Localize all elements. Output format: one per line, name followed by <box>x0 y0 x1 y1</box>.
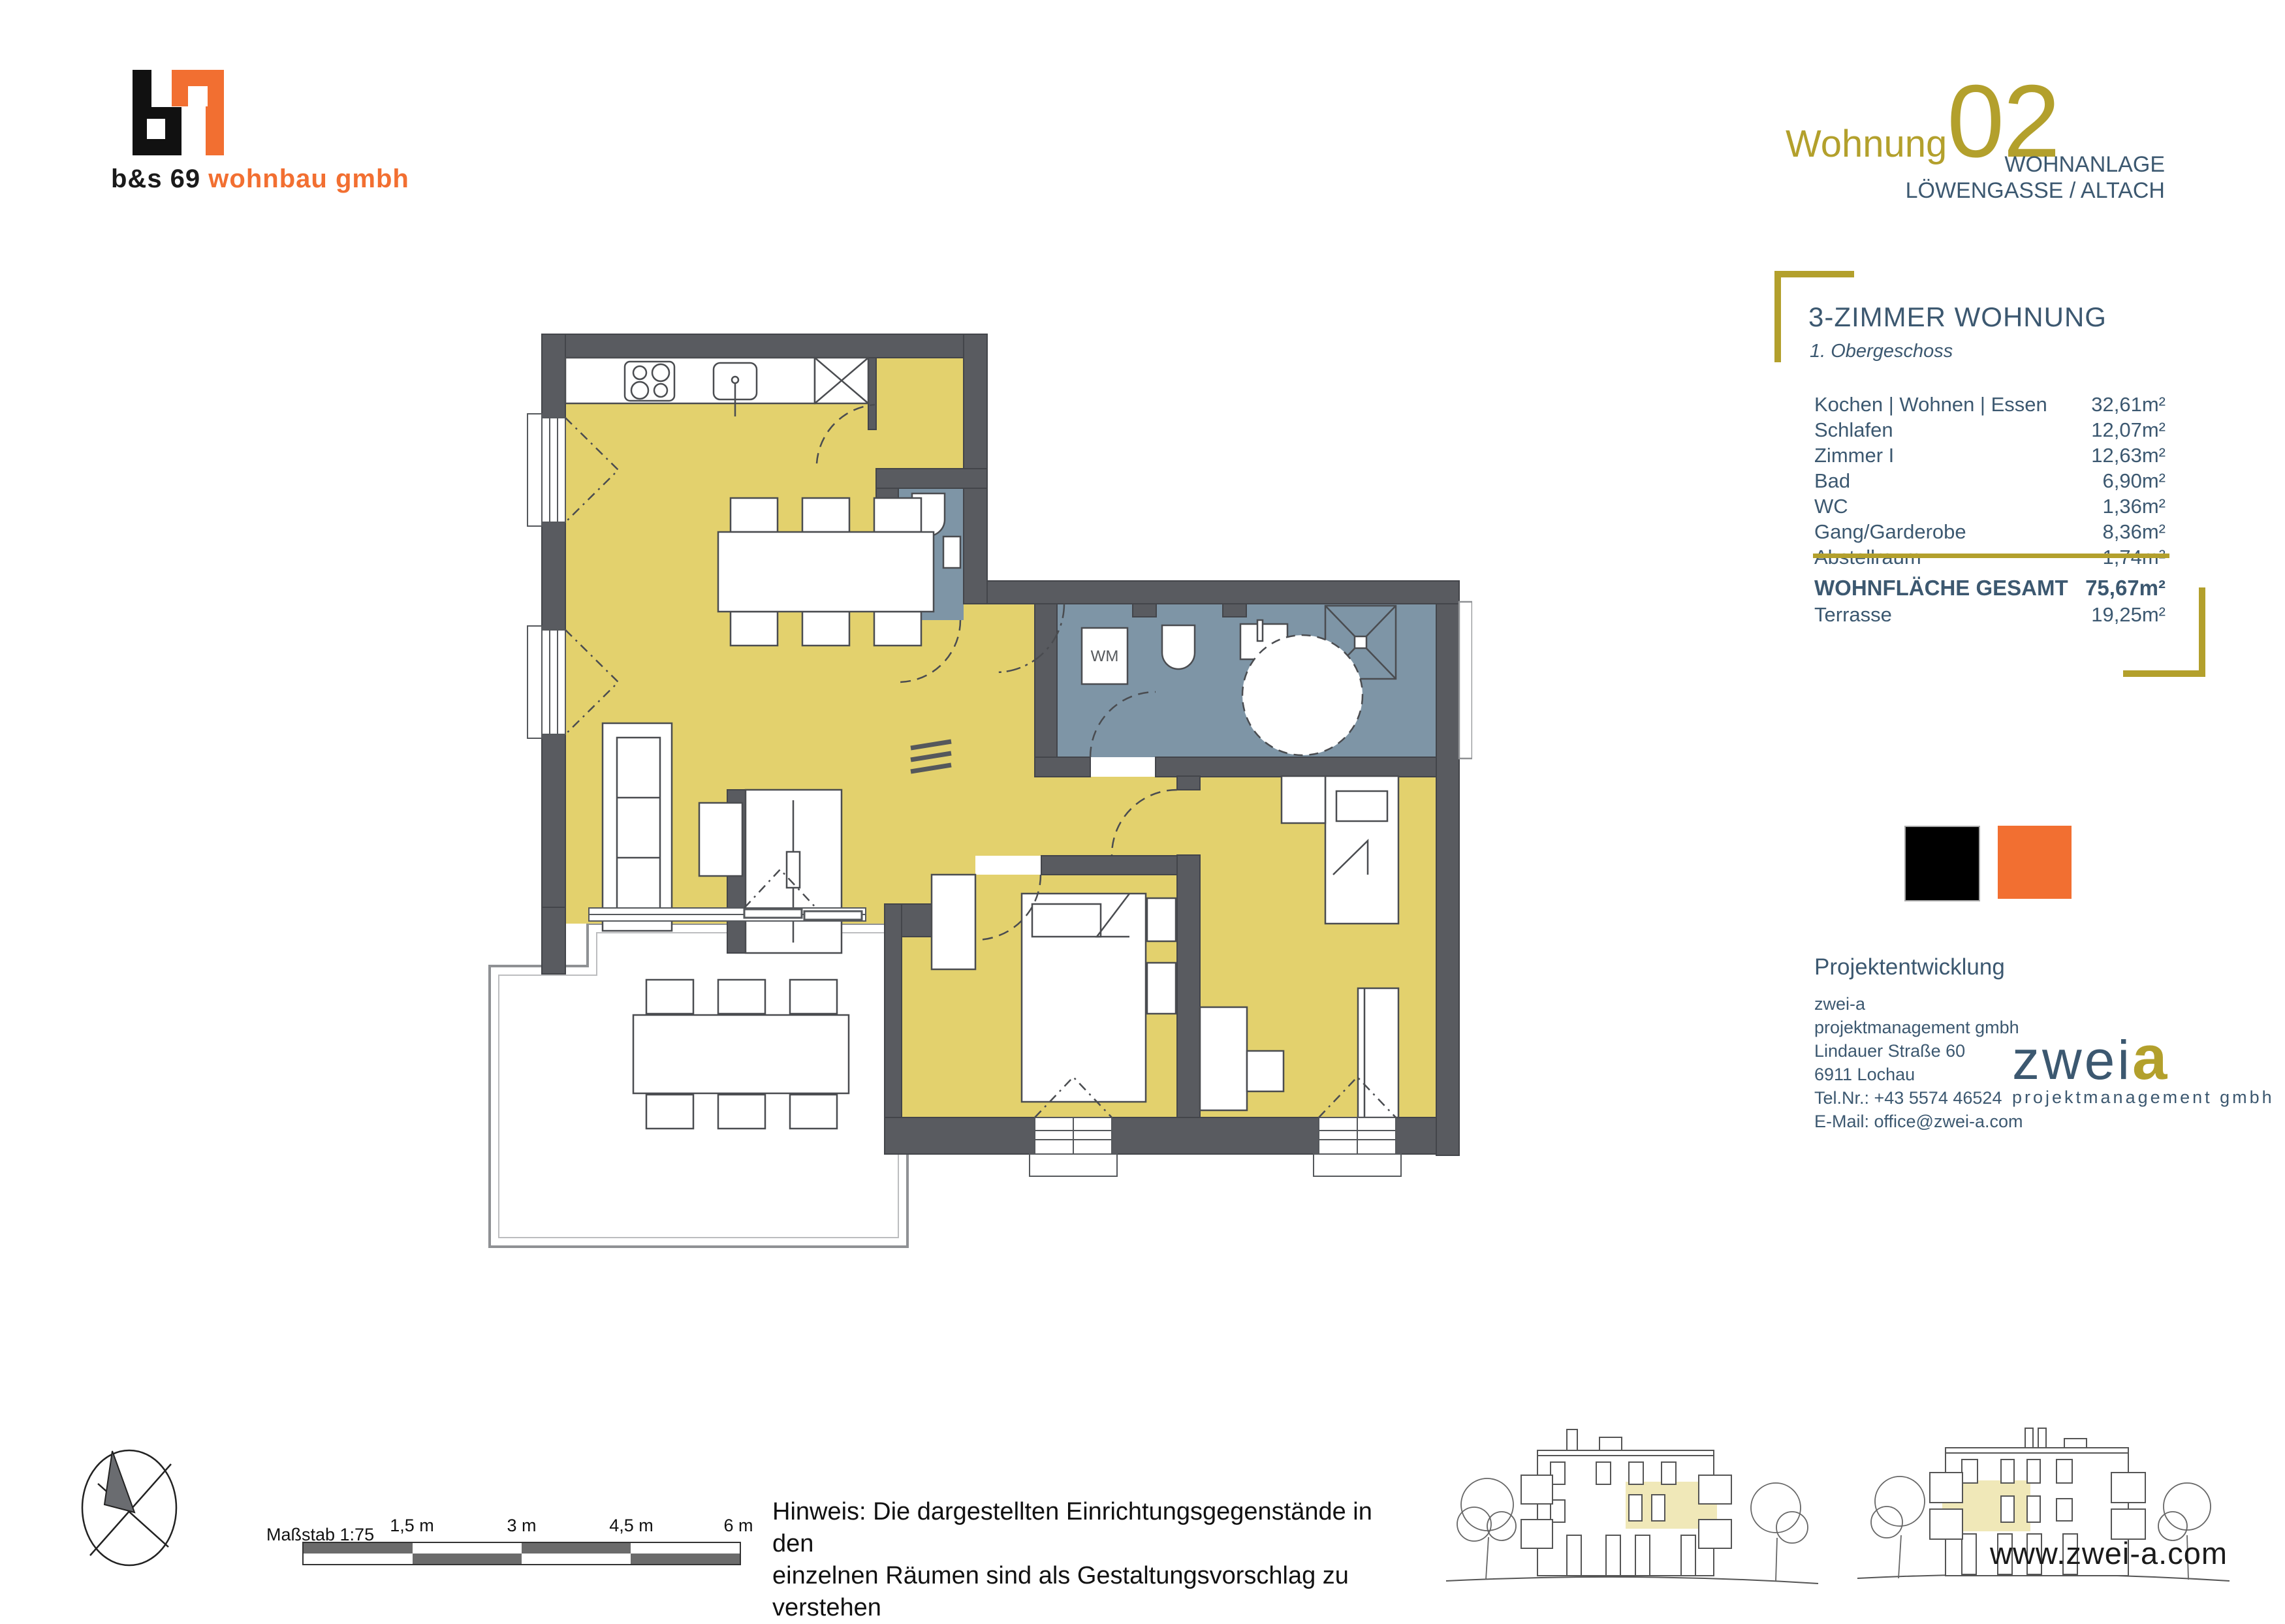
zweia-logo: zweia projektmanagement gmbh <box>2012 1022 2275 1108</box>
bracket-bottom-right-v <box>2199 587 2205 677</box>
sliding-door-icon <box>589 908 866 921</box>
table-row: Gang/Garderobe8,36m² <box>1814 519 2166 544</box>
table-row: Zimmer I12,63m² <box>1814 443 2166 468</box>
terrace-table <box>633 980 849 1129</box>
company-name: b&s 69 wohnbau gmbh <box>111 164 409 194</box>
turning-circle <box>1242 635 1363 755</box>
bedroom-wardrobe-icon <box>932 875 975 969</box>
swatch-orange <box>1998 826 2072 899</box>
disclaimer-note: Hinweis: Die dargestellten Einrichtungsg… <box>772 1496 1399 1624</box>
bracket-top-left-h <box>1774 271 1854 277</box>
contact-line: projektmanagement gmbh <box>1814 1016 2023 1039</box>
contact-line: E-Mail: office@zwei-a.com <box>1814 1110 2023 1133</box>
zweia-logo-a: a <box>2132 1023 2167 1093</box>
unit-type-title: 3-ZIMMER WOHNUNG <box>1808 302 2107 333</box>
hall-wardrobe-icon <box>746 790 842 953</box>
floorplan-sheet: { "branding": { "logo_black_text": "b&s … <box>0 0 2285 1616</box>
dining-table <box>718 498 934 646</box>
terrace-area-row: Terrasse19,25m² <box>1814 603 2166 627</box>
wardrobe-icon <box>1358 988 1398 1117</box>
contact-line: zwei-a <box>1814 992 2023 1016</box>
floor-label: 1. Obergeschoss <box>1810 341 1953 362</box>
scale-bar <box>302 1542 741 1565</box>
total-area-row: WOHNFLÄCHE GESAMT75,67m² <box>1814 576 2166 601</box>
zweia-logo-word: zwei <box>2012 1029 2132 1091</box>
project-subtitle-line2: LÖWENGASSE / ALTACH <box>1906 178 2165 204</box>
table-row: Bad6,90m² <box>1814 468 2166 493</box>
table-row: Schlafen12,07m² <box>1814 417 2166 443</box>
wc-cabinet-icon <box>943 537 960 568</box>
project-subtitle-line1: WOHNANLAGE <box>1906 151 2165 178</box>
bracket-bottom-right-h <box>2123 670 2205 677</box>
table-row: WC1,36m² <box>1814 493 2166 519</box>
toilet-icon <box>1162 625 1195 669</box>
coffee-table-icon <box>699 803 742 876</box>
company-name-black: b&s 69 <box>111 164 200 193</box>
zweia-logo-sub: projektmanagement gmbh <box>2012 1087 2275 1108</box>
elevation-sketch-west <box>1848 1410 2239 1606</box>
sofa-icon <box>603 723 672 931</box>
bracket-top-left-v <box>1774 271 1781 362</box>
compass-icon <box>72 1426 183 1589</box>
company-name-orange: wohnbau gmbh <box>208 164 409 193</box>
contact-line: Tel.Nr.: +43 5574 46524 <box>1814 1086 2023 1110</box>
website-url: www.zwei-a.com <box>1990 1535 2228 1571</box>
bs69-logo-icon <box>133 70 224 155</box>
contact-block: Projektentwicklung zwei-a projektmanagem… <box>1814 954 2023 1133</box>
elevation-sketch-south <box>1436 1410 1828 1606</box>
scale-ticks: 1,5 m 3 m 4,5 m 6 m <box>302 1516 741 1535</box>
exterior-sill <box>1459 602 1472 758</box>
table-divider <box>1813 554 2169 558</box>
contact-heading: Projektentwicklung <box>1814 954 2023 980</box>
table-row: Kochen | Wohnen | Essen32,61m² <box>1814 392 2166 417</box>
floor-plan: WM <box>454 307 1472 1260</box>
washing-machine-label: WM <box>1091 648 1119 665</box>
project-subtitle: WOHNANLAGE LÖWENGASSE / ALTACH <box>1906 151 2165 204</box>
swatch-black <box>1904 826 1980 901</box>
contact-line: 6911 Lochau <box>1814 1063 2023 1086</box>
contact-line: Lindauer Straße 60 <box>1814 1039 2023 1063</box>
room-area-table: Kochen | Wohnen | Essen32,61m² Schlafen1… <box>1814 392 2166 570</box>
